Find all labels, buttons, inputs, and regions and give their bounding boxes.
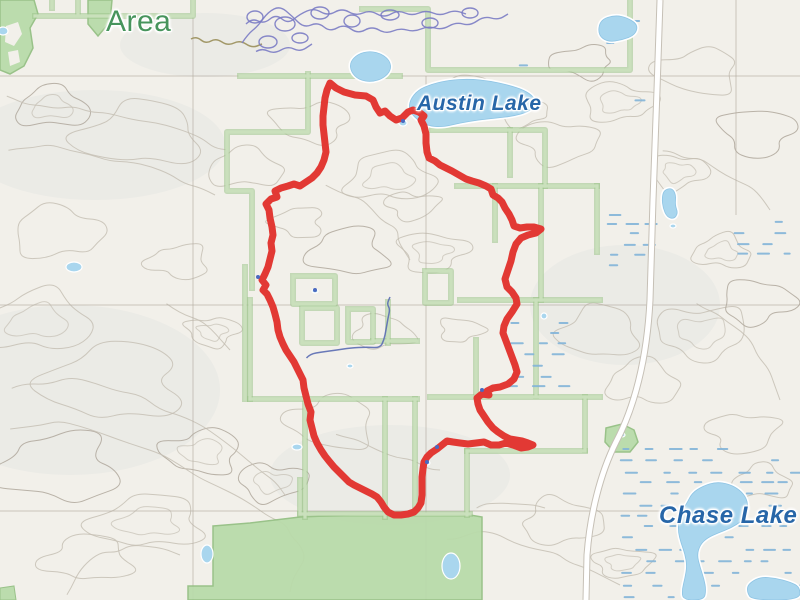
- map-canvas[interactable]: Area Austin Lake Chase Lake: [0, 0, 800, 600]
- map-svg: [0, 0, 800, 600]
